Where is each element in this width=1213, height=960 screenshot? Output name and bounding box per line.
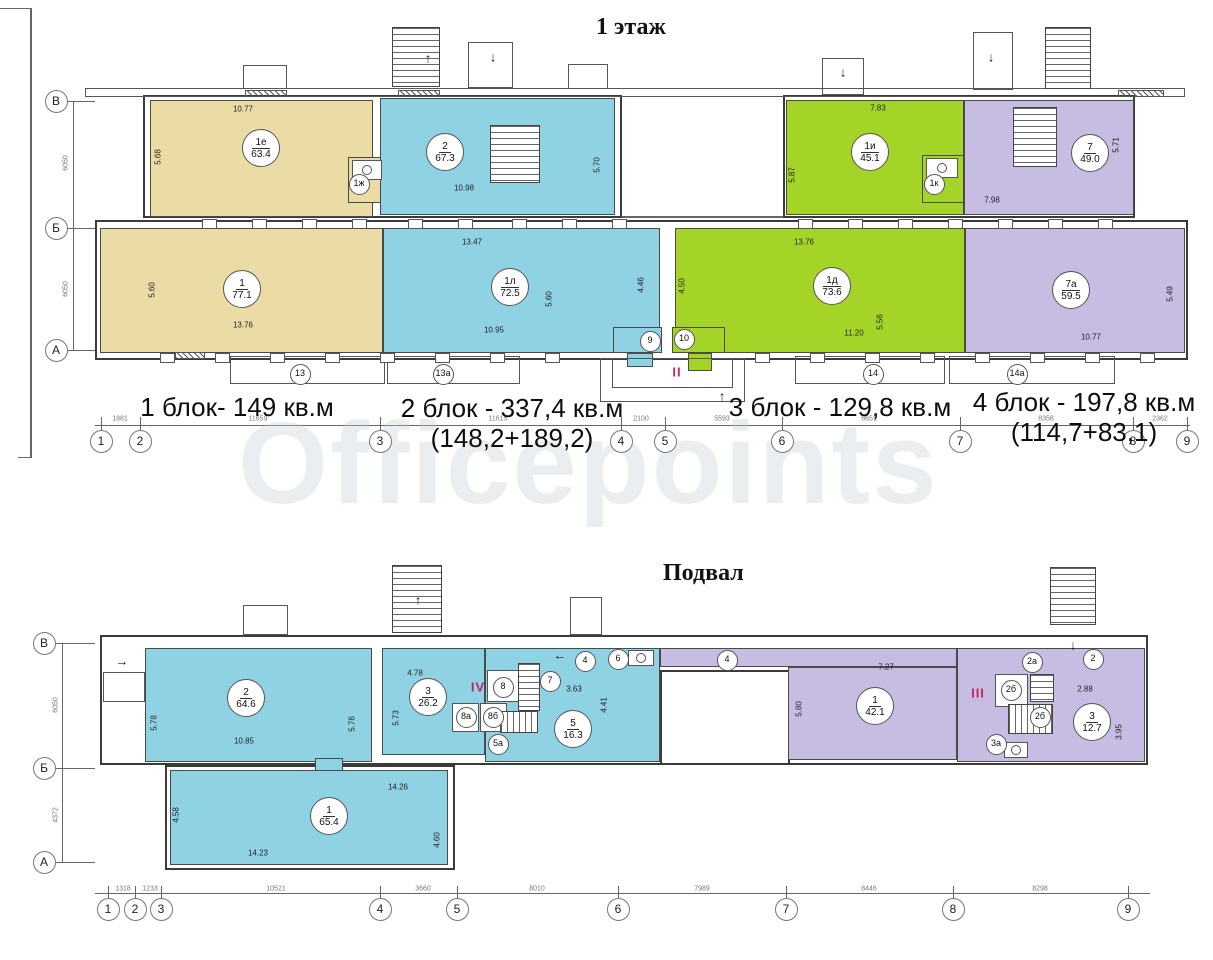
window-pier (948, 219, 963, 229)
room-number: 2а (1027, 657, 1037, 667)
room-area-value: 64.6 (236, 699, 255, 710)
axis-circle: Б (33, 757, 56, 780)
building-wall (660, 670, 790, 765)
dimension-label: 13.76 (794, 238, 814, 247)
room-number: 3 (1086, 711, 1098, 723)
axis-circle: 6 (771, 430, 794, 453)
dimension-label: 5.49 (1166, 286, 1175, 302)
hatched-wall (175, 352, 205, 359)
room-label: 13 (290, 364, 311, 385)
room-label: 7 (540, 671, 561, 692)
room-number: 1 (869, 695, 881, 707)
room-area-value: 65.4 (319, 817, 338, 828)
room-number: 1к (930, 179, 939, 189)
room-area-value: 67.3 (435, 153, 454, 164)
room-label: 4 (717, 650, 738, 671)
frame-line (95, 893, 1150, 894)
dimension-label: 13.47 (462, 238, 482, 247)
dimension-label: 10.95 (484, 326, 504, 335)
axis-circle: А (33, 851, 56, 874)
window-pier (848, 219, 863, 229)
frame-line (56, 643, 95, 644)
dimension-label: 7.83 (870, 104, 886, 113)
room-label: 1и45.1 (851, 133, 889, 171)
room-label: 264.6 (227, 679, 265, 717)
axis-dimension: 8010 (529, 886, 545, 893)
axis-circle: 8 (942, 898, 965, 921)
axis-circle: 9 (1117, 898, 1140, 921)
arrow-icon: ↓ (988, 50, 995, 65)
plan-title-floor1: 1 этаж (596, 14, 666, 41)
dimension-label: 5.73 (392, 710, 401, 726)
dimension-label: 10.77 (1081, 333, 1101, 342)
window-pier (512, 219, 527, 229)
window-pier (755, 353, 770, 363)
structure-outline (243, 65, 287, 89)
axis-dimension: 1318 (115, 886, 131, 893)
room-number: 8а (461, 712, 471, 722)
dimension-label: 5.56 (876, 314, 885, 330)
window-pier (325, 353, 340, 363)
room-label: 142.1 (856, 687, 894, 725)
room-label: 2 (1083, 649, 1104, 670)
dimension-label: 4.60 (433, 832, 442, 848)
stairs-icon (392, 27, 440, 87)
window-pier (270, 353, 285, 363)
block-label-main: 1 блок- 149 кв.м (140, 392, 333, 422)
frame-line (0, 8, 30, 9)
window-pier (898, 219, 913, 229)
room-number: 1и (861, 141, 878, 153)
dimension-label: 5.68 (154, 149, 163, 165)
room-number: 14 (868, 369, 878, 379)
structure-outline (568, 64, 608, 89)
stairs-icon (1013, 107, 1057, 167)
arrow-icon: ↑ (425, 51, 432, 66)
axis-dimension: 6050 (63, 281, 70, 297)
axis-dimension: 4372 (53, 807, 60, 823)
arrow-icon: ↓ (490, 50, 497, 65)
axis-circle: 3 (150, 898, 173, 921)
dimension-label: 10.98 (454, 184, 474, 193)
dimension-label: 13.76 (233, 321, 253, 330)
room-number: 1д (823, 275, 840, 287)
room-area-value: 49.0 (1080, 154, 1099, 165)
room-label: 2а (1022, 652, 1043, 673)
dimension-label: 5.71 (1112, 137, 1121, 153)
floorplan-canvas: 1 этаж Подвал Officepoints ↓↓↓↑↑1е63.426… (0, 0, 1213, 960)
window-pier (975, 353, 990, 363)
axis-circle: 2 (124, 898, 147, 921)
window-pier (1030, 353, 1045, 363)
axis-dimension: 8446 (861, 886, 877, 893)
room-label: 6 (608, 649, 629, 670)
room-label: 1е63.4 (242, 129, 280, 167)
window-pier (562, 219, 577, 229)
dimension-label: 10.85 (234, 737, 254, 746)
stairs-icon (500, 711, 538, 733)
room-number: 7а (1062, 279, 1079, 291)
room-number: 8б (488, 712, 498, 722)
hatched-wall (1118, 90, 1164, 97)
plan-title-basement: Подвал (663, 560, 744, 587)
room-label: 1ж (349, 174, 370, 195)
structure-outline (243, 605, 288, 635)
room-label: 267.3 (426, 133, 464, 171)
room-area (660, 648, 957, 667)
dimension-label: 11.20 (844, 329, 863, 338)
entrance-marker: IV (471, 680, 485, 695)
stairs-icon (518, 663, 540, 711)
room-number: 3а (991, 739, 1001, 749)
window-pier (612, 219, 627, 229)
axis-dimension: 5593 (714, 416, 730, 423)
room-number: 4 (724, 655, 729, 665)
room-number: 13 (295, 369, 305, 379)
dimension-label: 4.78 (407, 669, 423, 678)
axis-circle: 5 (654, 430, 677, 453)
room-area-value: 45.1 (860, 153, 879, 164)
axis-circle: 1 (90, 430, 113, 453)
axis-circle: 6 (607, 898, 630, 921)
hatched-wall (398, 90, 440, 97)
axis-circle: 1 (97, 898, 120, 921)
room-label: 1д73.6 (813, 267, 851, 305)
arrow-icon: ↓ (1070, 638, 1077, 653)
axis-tick (665, 417, 666, 431)
frame-line (56, 768, 95, 769)
axis-dimension: 1233 (142, 886, 158, 893)
window-pier (352, 219, 367, 229)
dimension-label: 7.27 (878, 663, 894, 672)
room-area-value: 42.1 (865, 707, 884, 718)
dimension-label: 5.80 (795, 701, 804, 717)
room-number: 3 (422, 686, 434, 698)
room-label: 2б (1030, 707, 1051, 728)
window-pier (865, 353, 880, 363)
room-label: 516.3 (554, 710, 592, 748)
axis-circle: Б (45, 217, 68, 240)
frame-line (68, 350, 95, 351)
window-pier (545, 353, 560, 363)
room-number: 7 (547, 676, 552, 686)
window-pier (408, 219, 423, 229)
dimension-label: 10.77 (233, 105, 253, 114)
dimension-label: 5.87 (788, 167, 797, 183)
window-pier (458, 219, 473, 229)
room-label: 8 (493, 677, 514, 698)
window-pier (380, 353, 395, 363)
room-area-value: 59.5 (1061, 291, 1080, 302)
dimension-label: 14.23 (248, 849, 268, 858)
axis-circle: 4 (369, 898, 392, 921)
axis-dimension: 1881 (112, 416, 128, 423)
frame-line (622, 216, 783, 218)
axis-circle: В (33, 632, 56, 655)
stairs-icon (1030, 674, 1054, 702)
block-area-label: 2 блок - 337,4 кв.м(148,2+189,2) (401, 393, 623, 453)
room-label: 1л72.5 (491, 268, 529, 306)
room-label: 749.0 (1071, 134, 1109, 172)
room-number: 5а (493, 739, 503, 749)
window-pier (252, 219, 267, 229)
block-label-sub: (148,2+189,2) (401, 423, 623, 453)
axis-tick (960, 417, 961, 431)
room-label: 326.2 (409, 678, 447, 716)
room-number: 2б (1006, 685, 1016, 695)
structure-outline (103, 672, 145, 702)
room-label: 14 (863, 364, 884, 385)
frame-line (18, 457, 30, 458)
room-label: 10 (674, 329, 695, 350)
room-number: 1е (252, 137, 269, 149)
dimension-label: 4.58 (172, 807, 181, 823)
stairs-icon (1045, 27, 1091, 89)
window-pier (920, 353, 935, 363)
room-label: 13а (433, 364, 454, 385)
frame-line (68, 228, 95, 229)
dimension-label: 7.98 (984, 196, 1000, 205)
room-label: 5а (488, 734, 509, 755)
room-number: 9 (647, 336, 652, 346)
structure-outline (570, 597, 602, 635)
room-number: 5 (567, 718, 579, 730)
room-number: 2 (439, 141, 451, 153)
arrow-icon: ← (554, 648, 567, 663)
window-pier (435, 353, 450, 363)
window-pier (1085, 353, 1100, 363)
room-area-value: 72.5 (500, 288, 519, 299)
stairs-icon (490, 125, 540, 183)
dimension-label: 5.70 (593, 157, 602, 173)
room-label: 14а (1007, 364, 1028, 385)
window-pier (215, 353, 230, 363)
dimension-label: 2.88 (1077, 685, 1093, 694)
room-number: 4 (582, 656, 587, 666)
stairs-icon (1050, 567, 1096, 625)
room-label: 8б (483, 707, 504, 728)
window-pier (810, 353, 825, 363)
frame-line (56, 862, 95, 863)
window-pier (1140, 353, 1155, 363)
room-label: 177.1 (223, 270, 261, 308)
hatched-wall (245, 90, 287, 97)
axis-dimension: 2100 (633, 416, 649, 423)
room-area-value: 77.1 (232, 290, 251, 301)
room-area-value: 12.7 (1082, 723, 1101, 734)
block-area-label: 1 блок- 149 кв.м (140, 392, 333, 422)
room-area-value: 63.4 (251, 149, 270, 160)
frame-line (73, 101, 74, 350)
dimension-label: 5.76 (348, 716, 357, 732)
block-area-label: 3 блок - 129,8 кв.м (729, 392, 951, 422)
arrow-icon: ↑ (415, 593, 422, 608)
room-label: 4 (575, 651, 596, 672)
room-label: 3а (986, 734, 1007, 755)
room-label: 7а59.5 (1052, 271, 1090, 309)
axis-dimension: 6050 (63, 155, 70, 171)
room-area-value: 73.6 (822, 287, 841, 298)
dimension-label: 3.95 (1115, 724, 1124, 740)
room-number: 1 (323, 805, 335, 817)
dimension-label: 5.60 (545, 291, 554, 307)
arrow-icon: ↓ (840, 65, 847, 80)
entrance-marker: II (672, 365, 681, 380)
room-number: 13а (435, 369, 450, 379)
room-label: 1к (924, 174, 945, 195)
axis-dimension: 6050 (53, 697, 60, 713)
frame-line (68, 101, 95, 102)
block-label-main: 3 блок - 129,8 кв.м (729, 392, 951, 422)
room-number: 2 (1090, 654, 1095, 664)
room-number: 7 (1084, 142, 1096, 154)
room-area-value: 26.2 (418, 698, 437, 709)
room-number: 1 (236, 278, 248, 290)
axis-tick (101, 417, 102, 431)
dimension-label: 3.63 (566, 685, 582, 694)
axis-dimension: 10521 (266, 886, 285, 893)
window-pier (1098, 219, 1113, 229)
block-label-main: 2 блок - 337,4 кв.м (401, 393, 623, 423)
axis-circle: А (45, 339, 68, 362)
room-number: 6 (615, 654, 620, 664)
arrow-icon: ↑ (719, 389, 726, 404)
room-label: 312.7 (1073, 703, 1111, 741)
axis-circle: 3 (369, 430, 392, 453)
dimension-label: 4.46 (637, 277, 646, 293)
arrow-icon: → (116, 654, 129, 669)
axis-dimension: 3660 (415, 886, 431, 893)
room-number: 1л (501, 276, 518, 288)
room-number: 2б (1035, 712, 1045, 722)
room-number: 14а (1009, 369, 1024, 379)
block-label-sub: (114,7+83,1) (973, 417, 1195, 447)
frame-line (30, 8, 32, 458)
window-pier (490, 353, 505, 363)
window-pier (1048, 219, 1063, 229)
window-pier (998, 219, 1013, 229)
dimension-label: 5.78 (150, 715, 159, 731)
axis-circle: В (45, 90, 68, 113)
room-number: 2 (240, 687, 252, 699)
entrance-marker: III (971, 686, 985, 701)
toilet-icon (628, 650, 654, 666)
dimension-label: 14.26 (388, 783, 408, 792)
axis-circle: 5 (446, 898, 469, 921)
frame-line (62, 643, 63, 862)
toilet-icon (1004, 742, 1028, 758)
room-label: 9 (640, 331, 661, 352)
room-number: 1ж (353, 179, 364, 189)
dimension-label: 4.41 (600, 697, 609, 713)
window-pier (202, 219, 217, 229)
axis-dimension: 7989 (694, 886, 710, 893)
room-number: 10 (679, 334, 689, 344)
window-pier (302, 219, 317, 229)
axis-dimension: 8298 (1032, 886, 1048, 893)
room-label: 165.4 (310, 797, 348, 835)
window-pier (160, 353, 175, 363)
room-area-value: 16.3 (563, 730, 582, 741)
room-label: 2б (1001, 680, 1022, 701)
axis-tick (380, 417, 381, 431)
room-label: 8а (456, 707, 477, 728)
dimension-label: 5.60 (148, 282, 157, 298)
room-number: 8 (500, 682, 505, 692)
block-label-main: 4 блок - 197,8 кв.м (973, 387, 1195, 417)
axis-circle: 7 (775, 898, 798, 921)
block-area-label: 4 блок - 197,8 кв.м(114,7+83,1) (973, 387, 1195, 447)
axis-circle: 2 (129, 430, 152, 453)
window-pier (798, 219, 813, 229)
axis-circle: 7 (949, 430, 972, 453)
dimension-label: 4.50 (678, 278, 687, 294)
